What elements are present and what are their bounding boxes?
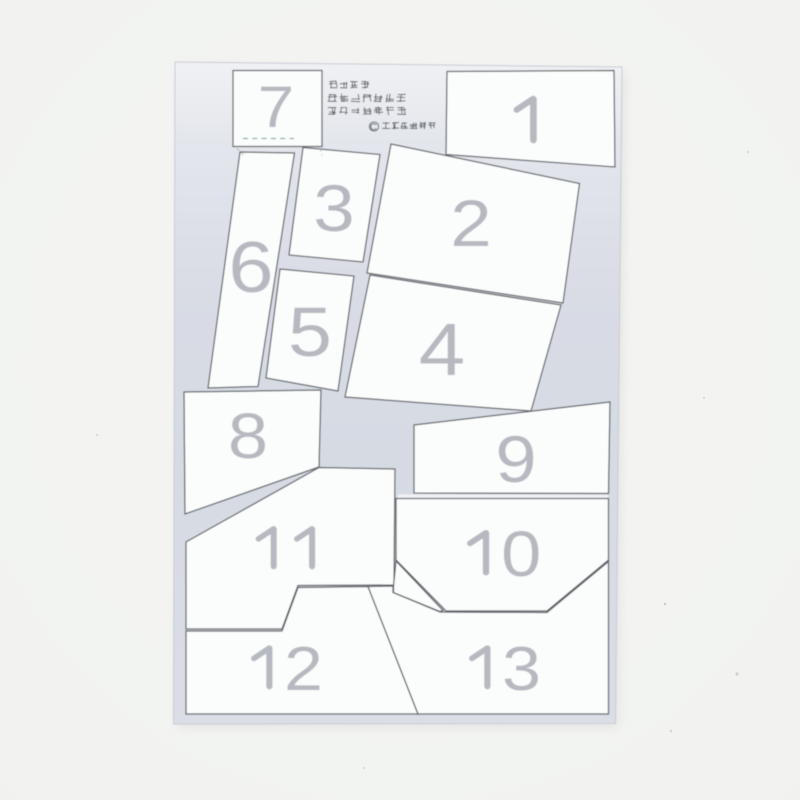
svg-text:8: 8 bbox=[228, 401, 268, 472]
svg-text:9: 9 bbox=[495, 422, 536, 496]
svg-text:0: 0 bbox=[501, 519, 541, 590]
svg-text:2: 2 bbox=[284, 635, 323, 704]
svg-text:5: 5 bbox=[288, 292, 332, 371]
svg-text:3: 3 bbox=[502, 635, 541, 704]
svg-text:7: 7 bbox=[258, 75, 294, 140]
svg-text:6: 6 bbox=[228, 227, 273, 308]
svg-text:3: 3 bbox=[313, 171, 354, 245]
svg-text:2: 2 bbox=[450, 186, 491, 260]
svg-text:4: 4 bbox=[419, 308, 465, 390]
